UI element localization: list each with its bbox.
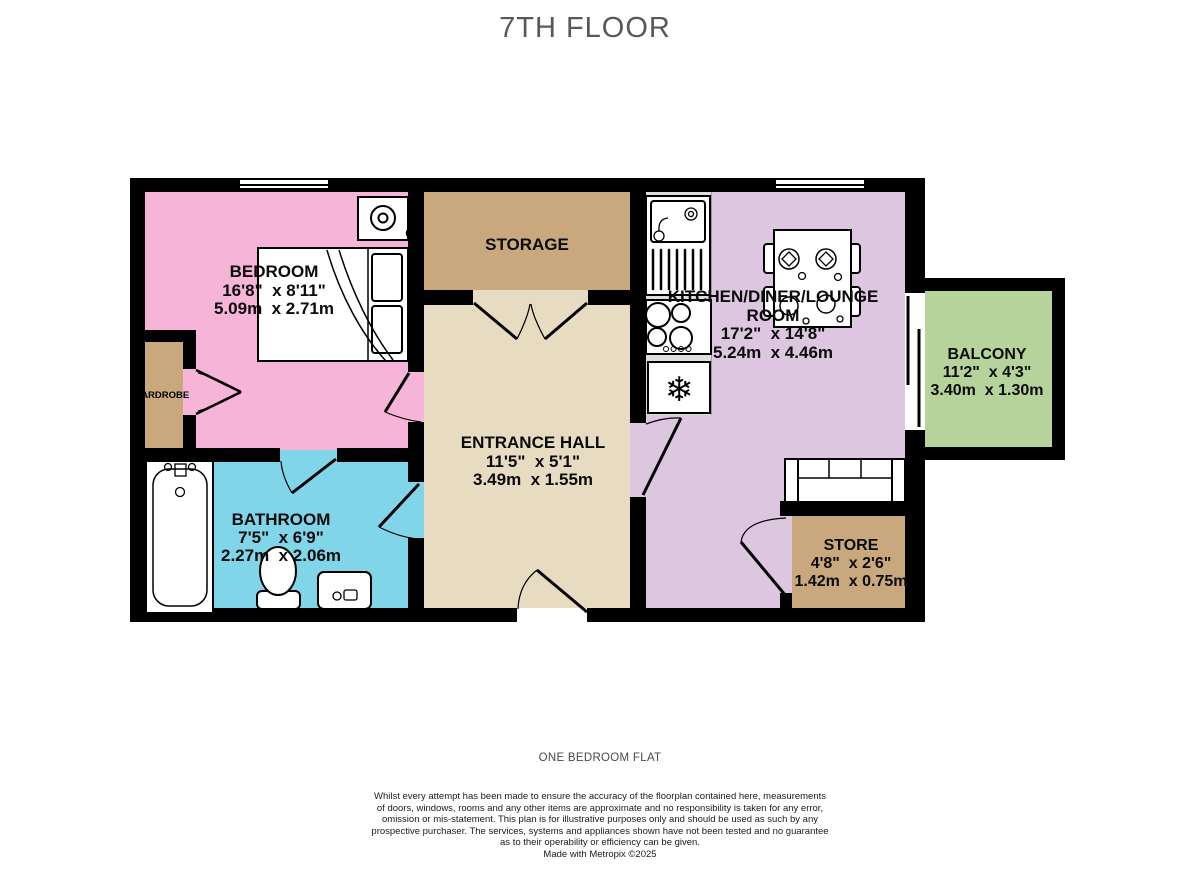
room-name: ENTRANCE HALL — [426, 434, 640, 453]
disclaimer-line: of doors, windows, rooms and any other i… — [0, 803, 1200, 815]
balcony-label: BALCONY 11'2" x 4'3" 3.40m x 1.30m — [918, 346, 1056, 400]
room-size-metric: 3.49m x 1.55m — [426, 471, 640, 490]
entrance-hall-label: ENTRANCE HALL 11'5" x 5'1" 3.49m x 1.55m — [426, 434, 640, 490]
room-size-imperial: 7'5" x 6'9" — [172, 529, 390, 547]
room-name: ROOM — [628, 307, 918, 326]
metropix-credit: Made with Metropix ©2025 — [0, 849, 1200, 861]
disclaimer: Whilst every attempt has been made to en… — [0, 791, 1200, 861]
disclaimer-line: as to their operability or efficiency ca… — [0, 837, 1200, 849]
room-name: STORE — [781, 537, 921, 555]
wardrobe-wall-stub1 — [183, 342, 196, 369]
bedroom-window — [238, 178, 330, 192]
balcony-wall-top — [915, 278, 1065, 291]
room-name: STORAGE — [447, 236, 607, 255]
disclaimer-line: Whilst every attempt has been made to en… — [0, 791, 1200, 803]
room-size-metric: 2.27m x 2.06m — [172, 547, 390, 565]
room-name: BALCONY — [918, 346, 1056, 364]
bathroom-label: BATHROOM 7'5" x 6'9" 2.27m x 2.06m — [172, 511, 390, 565]
room-size-metric: 1.42m x 0.75m — [781, 573, 921, 591]
room-name: BEDROOM — [168, 263, 380, 282]
wardrobe-wall-stub2 — [183, 415, 196, 448]
wall-bathroom-hall — [408, 538, 424, 608]
disclaimer-line: prospective purchaser. The services, sys… — [0, 826, 1200, 838]
room-size-imperial: 4'8" x 2'6" — [781, 555, 921, 573]
kitchen-diner-lounge-label: KITCHEN/DINER/LOUNGE ROOM 17'2" x 14'8" … — [628, 288, 918, 362]
wall-bedroom-bathroom-1 — [130, 448, 280, 462]
wardrobe-wall-top — [130, 330, 196, 342]
lounge-window — [774, 178, 866, 192]
room-size-imperial: 11'5" x 5'1" — [426, 453, 640, 472]
wall-storage-hall-1 — [424, 290, 473, 305]
store-wall-stub — [780, 593, 792, 608]
entrance-door-opening — [517, 608, 587, 622]
wall-hall-lounge-2 — [630, 497, 646, 608]
wall-bedroom-hall-1 — [408, 192, 424, 372]
room-size-metric: 3.40m x 1.30m — [918, 382, 1056, 400]
room-size-imperial: 11'2" x 4'3" — [918, 364, 1056, 382]
store-label: STORE 4'8" x 2'6" 1.42m x 0.75m — [781, 537, 921, 591]
wardrobe-label: WARDROBE — [126, 390, 196, 401]
room-name: BATHROOM — [172, 511, 390, 529]
balcony-wall-bottom — [915, 447, 1065, 460]
storage-label: STORAGE — [447, 236, 607, 255]
bedroom-label: BEDROOM 16'8" x 8'11" 5.09m x 2.71m — [168, 263, 380, 319]
store-wall-top — [780, 501, 925, 516]
room-size-metric: 5.09m x 2.71m — [168, 300, 380, 319]
room-size-imperial: 17'2" x 14'8" — [628, 325, 918, 344]
floorplan-page: 7TH FLOOR — [0, 0, 1200, 891]
disclaimer-line: omission or mis-statement. This plan is … — [0, 814, 1200, 826]
plan-caption: ONE BEDROOM FLAT — [0, 752, 1200, 764]
room-name: KITCHEN/DINER/LOUNGE — [628, 288, 918, 307]
room-size-metric: 5.24m x 4.46m — [628, 344, 918, 363]
bedroom-floor — [145, 192, 424, 450]
room-size-imperial: 16'8" x 8'11" — [168, 282, 380, 301]
wall-bedroom-bathroom-2 — [337, 448, 424, 462]
floor-title: 7TH FLOOR — [0, 12, 1170, 45]
